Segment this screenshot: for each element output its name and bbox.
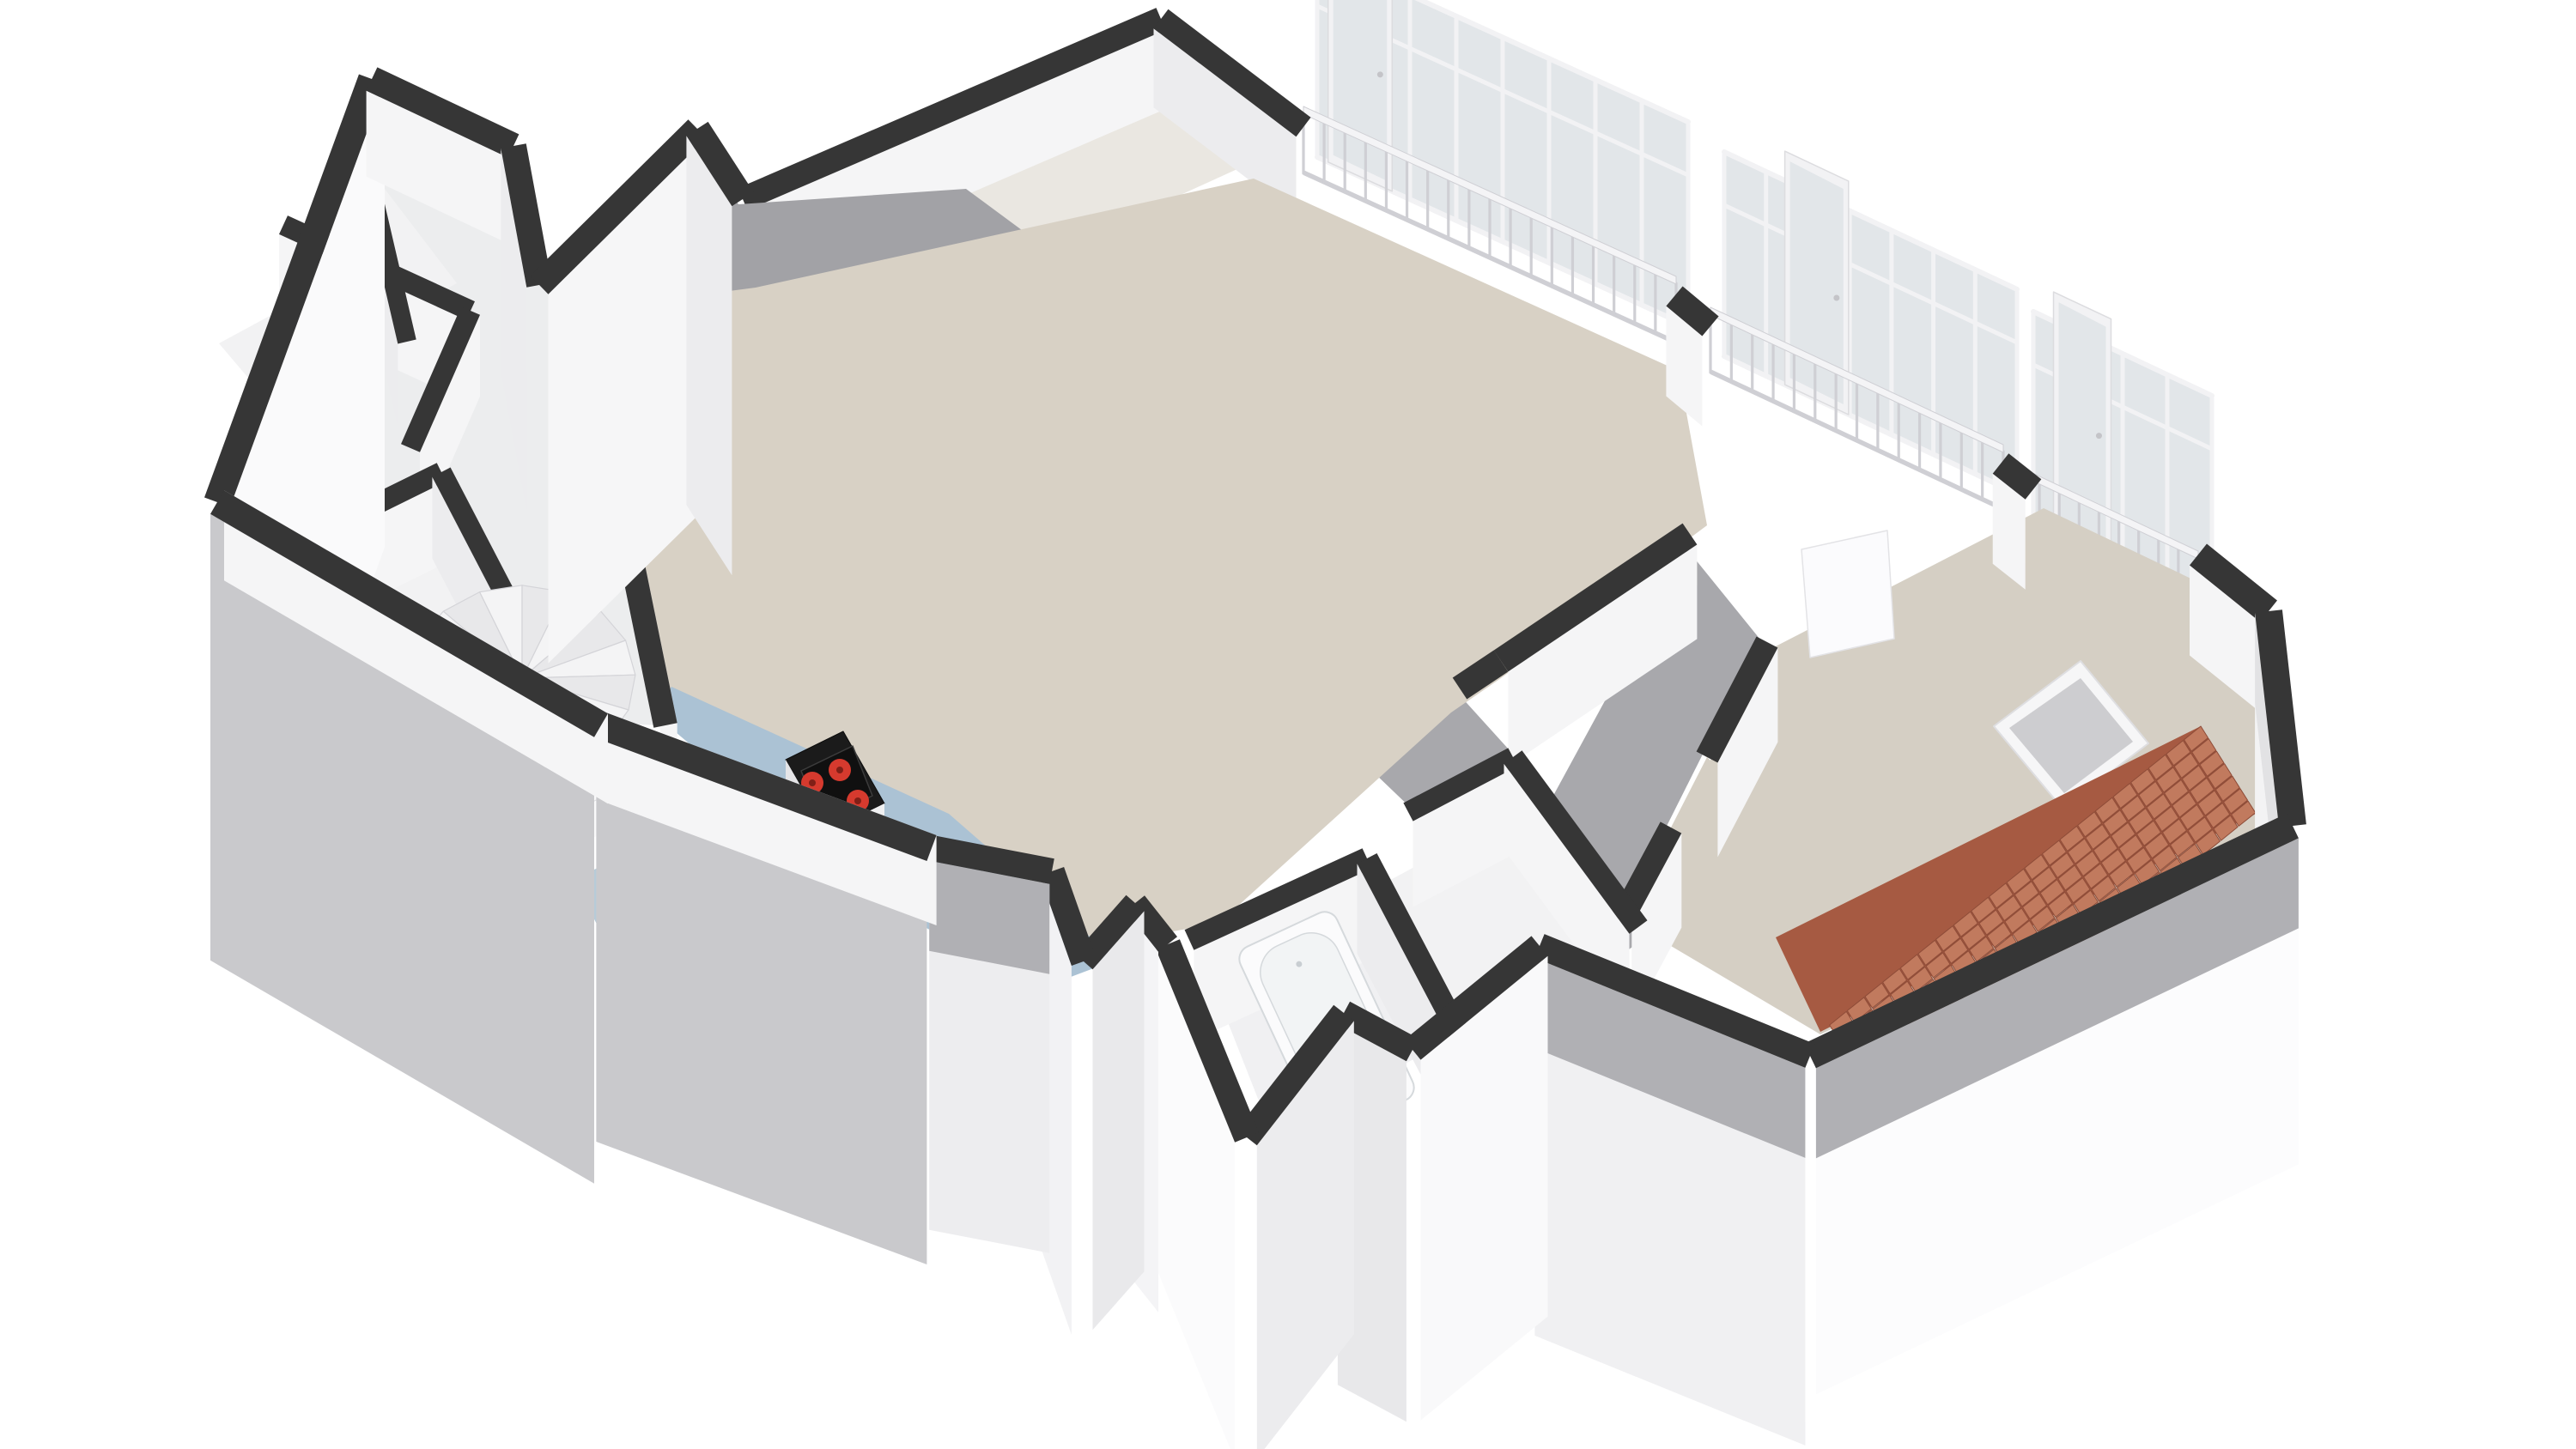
floor-plan-3d (0, 0, 2576, 1449)
floor-plan-canvas (0, 0, 2576, 1449)
cooktop-burner-center (809, 779, 816, 786)
perimeter-hall-jog-b-plinth (1093, 911, 1145, 1330)
perimeter-chamfer-jog-plinth (686, 136, 732, 575)
glass-bay-middle-doorhandle (1833, 294, 1839, 300)
glass-bay-east-doorhandle (2096, 433, 2102, 439)
cooktop-burner-center (854, 797, 861, 804)
cooktop-burner-center (836, 767, 843, 773)
glass-bay-west-doorglass (1334, 0, 1388, 181)
east-bedroom-door-leaf (1801, 530, 1894, 658)
glass-bay-west-doorhandle (1377, 71, 1383, 77)
